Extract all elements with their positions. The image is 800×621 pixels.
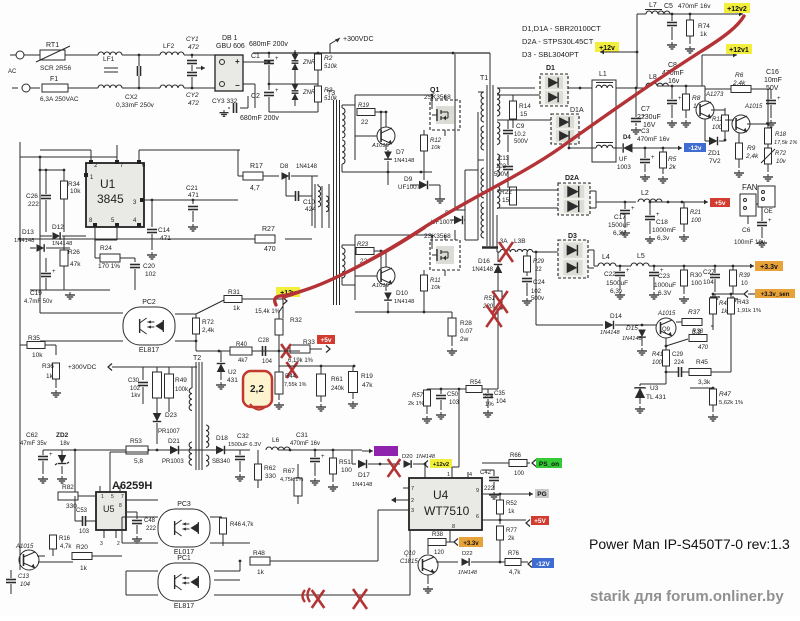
svg-text:+: + [678, 96, 682, 102]
svg-text:6,3v: 6,3v [657, 235, 670, 242]
svg-text:7,55k 1%: 7,55k 1% [284, 382, 307, 388]
svg-text:R62: R62 [264, 465, 276, 472]
svg-text:PC3: PC3 [177, 501, 191, 508]
svg-text:R26: R26 [68, 249, 80, 256]
svg-text:104: 104 [20, 582, 31, 588]
svg-text:2k: 2k [508, 536, 515, 542]
svg-text:1,91k 1%: 1,91k 1% [737, 308, 761, 314]
svg-text:470mF 16v: 470mF 16v [637, 136, 670, 143]
svg-text:2w: 2w [460, 336, 469, 343]
svg-text:471: 471 [188, 192, 199, 199]
svg-text:LF1: LF1 [103, 56, 115, 63]
svg-text:C30: C30 [128, 378, 140, 384]
svg-text:C21: C21 [186, 185, 198, 192]
svg-text:TL 431: TL 431 [646, 394, 666, 401]
svg-text:15,4k 1%: 15,4k 1% [255, 309, 281, 315]
svg-text:5,62k 1%: 5,62k 1% [719, 400, 743, 406]
svg-text:A1015: A1015 [15, 544, 34, 550]
svg-text:C6: C6 [742, 227, 751, 234]
svg-text:104: 104 [703, 279, 714, 286]
svg-text:1N4148: 1N4148 [458, 570, 477, 576]
svg-text:100: 100 [691, 280, 702, 287]
svg-text:10k: 10k [431, 145, 441, 151]
svg-text:2: 2 [411, 498, 414, 504]
svg-text:D12: D12 [52, 224, 64, 231]
svg-text:R72: R72 [775, 151, 787, 157]
svg-text:47mF 35v: 47mF 35v [20, 441, 47, 447]
svg-text:9: 9 [476, 488, 479, 494]
svg-text:3: 3 [100, 541, 103, 547]
svg-text:2: 2 [117, 541, 120, 547]
svg-text:L3A: L3A [496, 238, 508, 245]
svg-text:C16: C16 [766, 69, 779, 76]
svg-text:6,3V: 6,3V [613, 230, 627, 237]
svg-text:470: 470 [698, 345, 709, 351]
svg-text:R49: R49 [175, 377, 187, 384]
svg-text:R38: R38 [692, 329, 704, 335]
svg-text:4,75k 1%: 4,75k 1% [280, 477, 303, 483]
svg-text:D17: D17 [358, 472, 370, 479]
svg-text:R11: R11 [712, 117, 723, 123]
svg-text:C32: C32 [237, 433, 249, 440]
svg-text:100: 100 [712, 125, 723, 131]
svg-text:472: 472 [188, 44, 199, 51]
svg-text:1500uF: 1500uF [606, 280, 628, 287]
svg-text:15: 15 [520, 111, 528, 118]
svg-text:C18: C18 [656, 219, 668, 226]
svg-text:R19: R19 [361, 373, 373, 380]
svg-text:U3: U3 [650, 385, 659, 392]
svg-text:D2A: D2A [565, 175, 579, 182]
svg-text:R24: R24 [100, 245, 112, 252]
svg-text:R51: R51 [339, 459, 351, 466]
svg-text:R57: R57 [412, 393, 424, 399]
svg-text:R45: R45 [696, 359, 708, 366]
svg-text:C50: C50 [447, 392, 459, 398]
svg-text:C29: C29 [672, 352, 684, 358]
svg-text:T1: T1 [480, 75, 488, 82]
svg-text:500V: 500V [494, 172, 508, 178]
svg-text:R2: R2 [324, 55, 333, 62]
svg-text:Power Man IP-S450T7-0 rev:1.3: Power Man IP-S450T7-0 rev:1.3 [589, 536, 790, 552]
svg-text:470mF 16v: 470mF 16v [678, 3, 711, 10]
svg-text:R51: R51 [484, 296, 495, 302]
svg-text:1: 1 [447, 472, 450, 478]
svg-text:8: 8 [452, 524, 455, 530]
svg-text:R37: R37 [688, 309, 700, 316]
svg-text:100: 100 [691, 218, 702, 224]
svg-text:500v: 500v [531, 296, 544, 302]
svg-text:D8: D8 [280, 163, 289, 170]
svg-text:5,8: 5,8 [134, 458, 143, 465]
svg-text:5: 5 [111, 494, 114, 500]
svg-text:L4: L4 [602, 254, 610, 261]
svg-text:1003: 1003 [617, 164, 631, 171]
svg-text:+: + [275, 56, 279, 62]
svg-text:R5: R5 [668, 156, 677, 163]
svg-text:102: 102 [145, 271, 156, 278]
svg-text:C42: C42 [480, 470, 492, 476]
svg-text:102: 102 [496, 164, 507, 170]
svg-text:1500uF 6.3V: 1500uF 6.3V [228, 442, 261, 448]
svg-text:15: 15 [502, 197, 510, 204]
svg-text:C28: C28 [258, 338, 270, 344]
svg-text:R11: R11 [430, 278, 441, 284]
svg-text:2,4k: 2,4k [745, 153, 759, 160]
svg-text:102: 102 [130, 386, 141, 392]
svg-text:18v: 18v [60, 441, 70, 447]
svg-text:10k: 10k [431, 285, 441, 291]
svg-text:R40: R40 [236, 342, 248, 348]
svg-text:120: 120 [434, 550, 445, 556]
svg-text:CY1: CY1 [186, 36, 199, 43]
svg-text:+5V: +5V [534, 518, 546, 525]
svg-text:A1015: A1015 [371, 143, 390, 149]
svg-text:2,4k: 2,4k [202, 327, 215, 334]
svg-text:D1,D1A - SBR20100CT: D1,D1A - SBR20100CT [522, 24, 601, 33]
svg-text:EL817: EL817 [139, 347, 159, 354]
svg-text:C23: C23 [658, 273, 670, 280]
svg-text:+5v: +5v [714, 200, 725, 207]
svg-text:-12v: -12v [688, 145, 701, 152]
svg-text:1N4148: 1N4148 [394, 299, 414, 305]
svg-text:1k: 1k [700, 31, 708, 38]
svg-text:PC2: PC2 [142, 299, 156, 306]
svg-text:10: 10 [741, 281, 748, 287]
svg-text:D13: D13 [22, 229, 34, 236]
svg-text:1N4148: 1N4148 [394, 158, 414, 164]
svg-text:R39: R39 [739, 273, 751, 279]
svg-text:224: 224 [674, 360, 685, 366]
svg-text:D4: D4 [623, 135, 631, 141]
svg-text:R48: R48 [253, 550, 265, 557]
svg-text:LF2: LF2 [163, 43, 175, 50]
svg-text:103: 103 [79, 529, 90, 535]
svg-text:C24: C24 [533, 279, 545, 286]
svg-text:100: 100 [341, 467, 352, 474]
svg-text:C10: C10 [303, 199, 315, 206]
svg-text:ZD2: ZD2 [56, 432, 69, 439]
svg-text:3: 3 [411, 508, 414, 514]
svg-text:+: + [777, 96, 781, 102]
svg-text:222: 222 [146, 526, 157, 532]
svg-text:U2: U2 [228, 369, 237, 376]
svg-text:104: 104 [496, 399, 507, 405]
svg-text:1000uF: 1000uF [654, 282, 676, 289]
svg-text:A1015: A1015 [371, 283, 390, 289]
svg-text:A1015: A1015 [744, 104, 763, 110]
svg-text:R36: R36 [42, 363, 54, 370]
svg-text:CY2: CY2 [186, 92, 199, 99]
svg-text:R38: R38 [432, 532, 444, 538]
svg-text:10v: 10v [776, 159, 787, 165]
svg-text:0,33mF 250v: 0,33mF 250v [116, 102, 155, 109]
svg-text:C9: C9 [516, 123, 525, 130]
svg-text:1kv: 1kv [131, 393, 140, 399]
svg-text:D21: D21 [168, 438, 180, 445]
svg-text:4,7k: 4,7k [242, 522, 254, 528]
svg-text:D22: D22 [462, 551, 473, 557]
svg-text:CX2: CX2 [125, 94, 138, 101]
svg-text:D3: D3 [568, 233, 577, 240]
svg-text:6,3A 250VAC: 6,3A 250VAC [40, 96, 79, 103]
svg-text:+: + [626, 268, 630, 274]
svg-text:470mF 16v: 470mF 16v [290, 441, 320, 447]
svg-text:OE: OE [764, 209, 773, 215]
svg-text:A1273: A1273 [705, 92, 724, 98]
svg-text:D1A: D1A [570, 107, 584, 114]
svg-text:+3.3v: +3.3v [760, 264, 778, 271]
svg-text:C1815: C1815 [400, 559, 418, 565]
svg-text:R61: R61 [331, 376, 343, 383]
svg-text:R34: R34 [68, 181, 80, 188]
svg-text:+: + [631, 206, 635, 212]
svg-text:C20: C20 [143, 263, 155, 270]
svg-text:10.2: 10.2 [514, 132, 526, 138]
svg-text:R52: R52 [506, 501, 518, 507]
svg-text:D14: D14 [610, 313, 622, 320]
svg-text:+12v2: +12v2 [727, 6, 747, 13]
svg-text:0.07: 0.07 [460, 328, 473, 335]
svg-text:F1: F1 [50, 76, 58, 83]
svg-text:3845: 3845 [97, 192, 124, 206]
svg-text:1N4148: 1N4148 [52, 241, 72, 247]
svg-text:D20: D20 [402, 454, 413, 460]
svg-text:222: 222 [28, 201, 39, 208]
svg-text:R43: R43 [737, 299, 749, 306]
svg-text:starik для forum.onliner.by: starik для forum.onliner.by [590, 588, 784, 605]
svg-text:+: + [321, 454, 325, 460]
svg-text:C13: C13 [498, 156, 510, 162]
svg-text:L6: L6 [272, 437, 280, 444]
svg-text:4,7: 4,7 [250, 185, 260, 192]
svg-text:C27: C27 [703, 269, 715, 276]
svg-text:D2A - STPS30L45CT: D2A - STPS30L45CT [522, 37, 594, 46]
svg-text:680mF 200v: 680mF 200v [240, 115, 279, 122]
svg-text:+300VDC: +300VDC [343, 36, 374, 43]
svg-text:1k: 1k [257, 569, 265, 576]
svg-text:8: 8 [119, 503, 122, 509]
svg-text:R14: R14 [519, 103, 531, 110]
svg-text:6,19k 1%: 6,19k 1% [288, 358, 314, 364]
svg-text:U1: U1 [100, 177, 116, 191]
svg-text:AC: AC [8, 69, 17, 75]
svg-text:A1015: A1015 [657, 311, 676, 317]
svg-text:U5: U5 [103, 504, 115, 514]
svg-text:PR1003: PR1003 [162, 459, 184, 465]
svg-text:T3: T3 [327, 90, 335, 97]
svg-text:C7: C7 [641, 106, 650, 113]
svg-text:2k 1%: 2k 1% [408, 401, 424, 407]
svg-text:R53: R53 [130, 438, 142, 445]
svg-text:470: 470 [264, 246, 276, 253]
svg-text:2,4k: 2,4k [732, 80, 746, 87]
svg-text:4.7mF 50v: 4.7mF 50v [24, 299, 52, 305]
svg-text:1%: 1% [485, 402, 494, 408]
svg-text:U4: U4 [433, 488, 449, 502]
svg-text:R82: R82 [62, 484, 74, 491]
svg-text:PS_on: PS_on [539, 461, 559, 468]
svg-text:+3.3v_sen: +3.3v_sen [761, 292, 790, 298]
svg-text:100: 100 [652, 360, 663, 366]
svg-text:R29: R29 [533, 259, 545, 265]
svg-text:7V2: 7V2 [709, 158, 721, 165]
svg-text:7: 7 [121, 494, 124, 500]
svg-text:10k: 10k [32, 352, 43, 359]
svg-text:FAN: FAN [742, 183, 758, 192]
svg-text:C62: C62 [26, 432, 38, 439]
svg-text:510k: 510k [324, 64, 338, 70]
svg-text:+5v: +5v [320, 337, 331, 344]
svg-text:+: + [52, 269, 56, 275]
svg-text:1N4148: 1N4148 [622, 336, 642, 342]
svg-text:D1: D1 [546, 65, 555, 72]
svg-text:+3.3v: +3.3v [463, 541, 479, 547]
svg-text:PG: PG [537, 491, 546, 498]
svg-text:C26: C26 [26, 193, 38, 200]
svg-text:500V: 500V [514, 139, 528, 145]
svg-text:R19: R19 [358, 103, 370, 109]
svg-text:17,5k 1%: 17,5k 1% [774, 140, 797, 146]
svg-text:Q9: Q9 [662, 327, 671, 333]
svg-text:100: 100 [514, 471, 525, 477]
svg-text:2SK3568: 2SK3568 [424, 233, 451, 240]
svg-text:R6: R6 [735, 72, 744, 79]
svg-text:+: + [651, 155, 655, 161]
svg-text:4,7k: 4,7k [509, 570, 521, 576]
svg-text:330: 330 [265, 473, 276, 480]
svg-text:L1: L1 [599, 71, 607, 78]
svg-text:R28: R28 [460, 320, 472, 327]
svg-text:100mF 16v: 100mF 16v [734, 239, 766, 246]
svg-text:−: − [235, 81, 240, 90]
svg-text:PC1: PC1 [177, 555, 191, 562]
svg-text:T2: T2 [193, 355, 201, 362]
svg-text:240k: 240k [331, 386, 345, 392]
svg-text:+300VDC: +300VDC [68, 364, 97, 371]
svg-text:+: + [275, 88, 279, 94]
svg-text:D7: D7 [396, 149, 405, 156]
svg-text:C1: C1 [251, 53, 260, 60]
svg-text:6.3V: 6.3V [658, 290, 672, 297]
svg-text:R33: R33 [303, 339, 315, 346]
svg-text:R47: R47 [719, 391, 731, 398]
svg-text:GBU 606: GBU 606 [216, 43, 245, 50]
svg-text:R31: R31 [228, 289, 240, 296]
svg-text:7: 7 [411, 486, 414, 492]
svg-text:A6259H: A6259H [112, 480, 152, 492]
svg-text:R16: R16 [59, 536, 71, 542]
svg-text:L2: L2 [641, 190, 649, 197]
svg-text:EL817: EL817 [174, 603, 194, 610]
svg-text:R20: R20 [76, 544, 88, 551]
svg-text:D15: D15 [626, 325, 638, 332]
svg-text:100k: 100k [175, 387, 189, 393]
svg-text:472: 472 [188, 100, 199, 107]
svg-text:RT1: RT1 [46, 42, 59, 49]
svg-text:2,2: 2,2 [250, 384, 264, 395]
svg-text:PR1007: PR1007 [158, 429, 180, 435]
svg-text:C35: C35 [494, 391, 506, 397]
svg-text:D3 - SBL3040PT: D3 - SBL3040PT [522, 50, 579, 59]
svg-text:R76: R76 [508, 551, 520, 557]
svg-text:+12v: +12v [599, 45, 615, 52]
svg-text:R8: R8 [692, 95, 701, 102]
svg-text:R44: R44 [285, 374, 297, 380]
svg-text:ZD1: ZD1 [708, 150, 721, 157]
svg-text:2k: 2k [668, 164, 677, 171]
svg-text:222: 222 [484, 486, 495, 492]
svg-text:1k: 1k [233, 305, 241, 312]
svg-text:1k: 1k [508, 509, 515, 515]
svg-text:C3: C3 [641, 128, 650, 135]
svg-text:10k: 10k [70, 188, 81, 195]
svg-text:+: + [656, 212, 660, 218]
svg-text:1k: 1k [46, 373, 54, 380]
svg-text:10mF: 10mF [764, 77, 782, 84]
svg-text:R41: R41 [652, 352, 663, 358]
svg-text:1k: 1k [80, 565, 88, 572]
svg-text:C19: C19 [30, 290, 42, 297]
svg-text:1N4148: 1N4148 [296, 164, 318, 170]
svg-text:C53: C53 [76, 508, 88, 514]
svg-text:L7: L7 [649, 2, 657, 9]
svg-text:R18: R18 [775, 132, 787, 138]
svg-text:170 1%: 170 1% [98, 263, 120, 270]
svg-text:R17: R17 [250, 163, 263, 170]
svg-text:2SK3568: 2SK3568 [424, 94, 451, 101]
svg-text:D18: D18 [216, 435, 228, 442]
svg-text:R32: R32 [290, 317, 302, 324]
svg-text:6,3v: 6,3v [610, 288, 623, 295]
svg-text:D10: D10 [396, 290, 408, 297]
svg-text:+: + [235, 57, 240, 66]
svg-text:L5: L5 [637, 253, 645, 260]
svg-text:R27: R27 [262, 226, 275, 233]
svg-text:103: 103 [449, 400, 460, 406]
svg-text:4: 4 [469, 472, 472, 478]
svg-text:R9: R9 [747, 145, 756, 152]
svg-text:4,7k: 4,7k [60, 544, 72, 550]
svg-text:+: + [49, 452, 53, 458]
svg-text:1000mF: 1000mF [652, 227, 676, 234]
svg-text:16v: 16v [668, 78, 680, 85]
svg-text:D23: D23 [165, 412, 177, 419]
svg-text:R46: R46 [230, 522, 242, 528]
svg-text:+: + [768, 218, 772, 224]
svg-text:R30: R30 [690, 272, 702, 279]
svg-text:R35: R35 [28, 335, 40, 342]
svg-text:431: 431 [227, 377, 238, 384]
svg-text:UF: UF [619, 156, 627, 163]
svg-text:1: 1 [101, 494, 104, 500]
svg-text:C48: C48 [144, 518, 156, 524]
svg-text:D16: D16 [478, 258, 490, 265]
svg-text:680mF 200v: 680mF 200v [249, 41, 288, 48]
svg-text:47k: 47k [362, 382, 373, 389]
svg-text:1N4148: 1N4148 [600, 330, 620, 336]
svg-text:2230uF: 2230uF [637, 114, 661, 121]
svg-text:R66: R66 [510, 453, 522, 459]
svg-text:+12v1: +12v1 [729, 47, 749, 54]
svg-text:R72: R72 [202, 319, 214, 326]
svg-text:4k7: 4k7 [238, 358, 248, 364]
svg-text:C2: C2 [251, 93, 260, 100]
svg-text:SB340: SB340 [212, 459, 231, 465]
svg-text:R12: R12 [430, 138, 442, 144]
svg-text:Q1: Q1 [430, 87, 439, 94]
svg-text:1N4148: 1N4148 [352, 482, 372, 488]
